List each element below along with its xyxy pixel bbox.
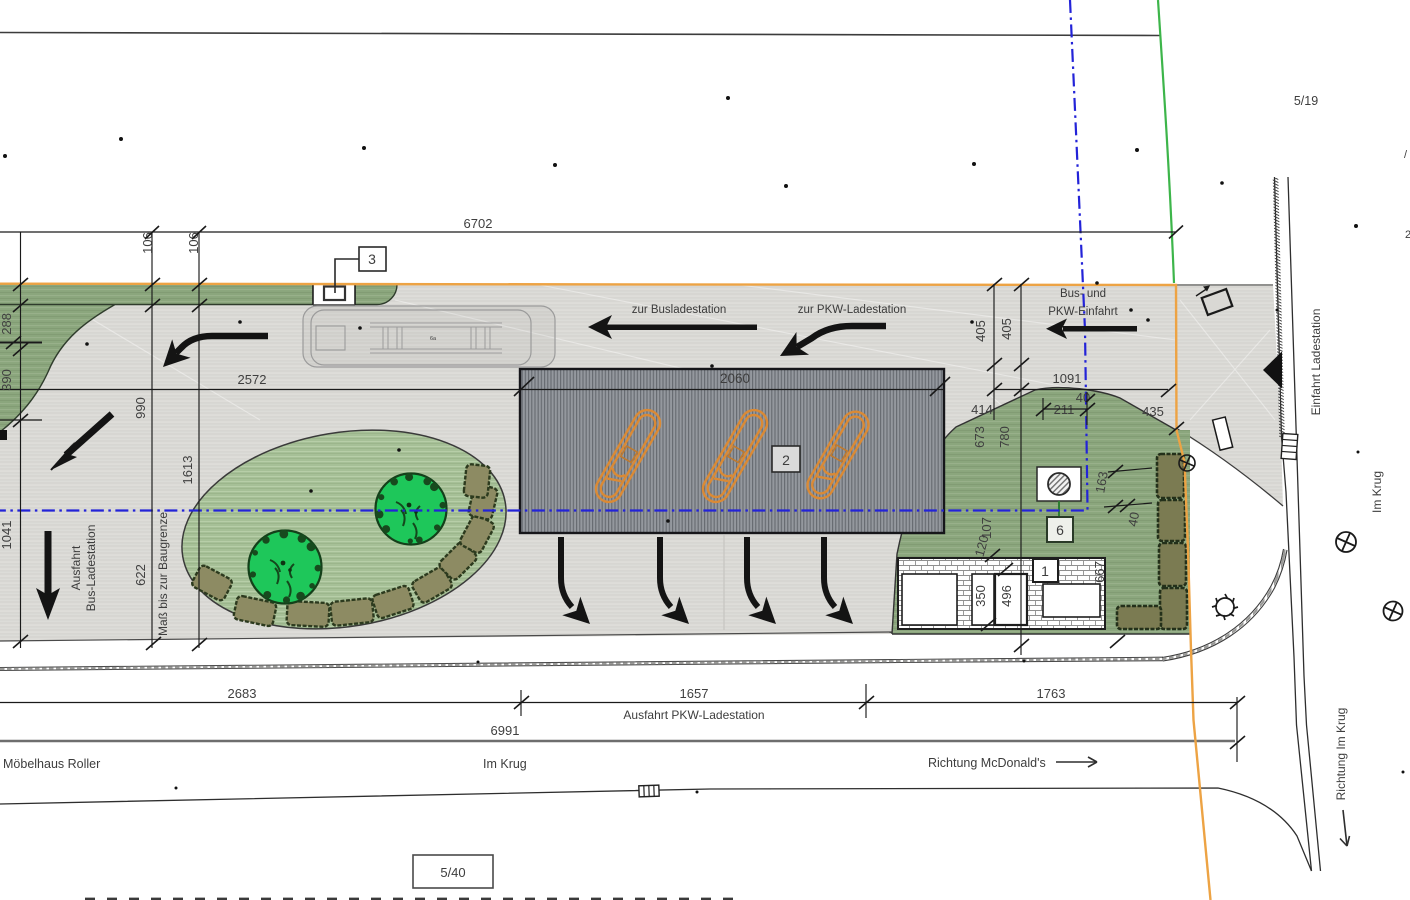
svg-text:1613: 1613 bbox=[180, 456, 195, 485]
svg-text:390: 390 bbox=[0, 369, 14, 391]
svg-text:5/19: 5/19 bbox=[1294, 94, 1318, 108]
svg-text:405: 405 bbox=[999, 318, 1014, 340]
svg-text:Ausfahrt PKW-Ladestation: Ausfahrt PKW-Ladestation bbox=[623, 708, 764, 722]
svg-text:Möbelhaus Roller: Möbelhaus Roller bbox=[3, 757, 100, 771]
svg-text:106: 106 bbox=[140, 232, 155, 254]
svg-text:1: 1 bbox=[1041, 563, 1049, 579]
svg-text:Einfahrt Ladestation: Einfahrt Ladestation bbox=[1309, 309, 1323, 416]
svg-text:6a: 6a bbox=[430, 336, 437, 342]
svg-text:Im Krug: Im Krug bbox=[1370, 471, 1384, 513]
svg-text:1091: 1091 bbox=[1053, 371, 1082, 386]
svg-text:2683: 2683 bbox=[228, 686, 257, 701]
svg-text:288: 288 bbox=[0, 313, 14, 335]
svg-text:6702: 6702 bbox=[464, 216, 493, 231]
svg-text:2060: 2060 bbox=[720, 371, 750, 386]
svg-text:Bus-Ladestation: Bus-Ladestation bbox=[84, 525, 98, 612]
svg-text:5/40: 5/40 bbox=[440, 865, 465, 880]
svg-text:6: 6 bbox=[1056, 522, 1064, 538]
svg-text:Richtung McDonald's: Richtung McDonald's bbox=[928, 756, 1046, 770]
svg-text:2: 2 bbox=[1405, 229, 1410, 241]
svg-text:40: 40 bbox=[1125, 511, 1142, 528]
svg-text:Richtung Im Krug: Richtung Im Krug bbox=[1334, 708, 1348, 801]
svg-text:Maß bis zur Baugrenze: Maß bis zur Baugrenze bbox=[156, 512, 170, 636]
svg-text:1657: 1657 bbox=[680, 686, 709, 701]
svg-text:1041: 1041 bbox=[0, 521, 14, 550]
svg-text:3: 3 bbox=[368, 251, 376, 267]
svg-text:350: 350 bbox=[973, 585, 988, 607]
svg-text:780: 780 bbox=[997, 426, 1012, 448]
svg-text:667: 667 bbox=[1092, 561, 1107, 583]
svg-text:673: 673 bbox=[972, 426, 987, 448]
svg-text:Bus- und: Bus- und bbox=[1060, 288, 1106, 300]
svg-text:zur PKW-Ladestation: zur PKW-Ladestation bbox=[798, 304, 906, 316]
svg-text:496: 496 bbox=[999, 585, 1014, 607]
svg-text:Ausfahrt: Ausfahrt bbox=[69, 545, 83, 590]
svg-text:40: 40 bbox=[1076, 390, 1090, 405]
svg-text:414: 414 bbox=[971, 402, 993, 417]
svg-text:6991: 6991 bbox=[491, 723, 520, 738]
svg-text:zur Busladestation: zur Busladestation bbox=[632, 304, 727, 316]
svg-text:405: 405 bbox=[973, 320, 988, 342]
svg-text:106: 106 bbox=[186, 232, 201, 254]
svg-text:PKW-Einfahrt: PKW-Einfahrt bbox=[1048, 306, 1118, 318]
svg-text:2572: 2572 bbox=[238, 372, 267, 387]
svg-text:2: 2 bbox=[782, 452, 790, 468]
svg-text:990: 990 bbox=[133, 397, 148, 419]
svg-text:622: 622 bbox=[133, 564, 148, 586]
svg-text:Im Krug: Im Krug bbox=[483, 757, 527, 771]
svg-text:435: 435 bbox=[1142, 404, 1164, 419]
svg-text:1763: 1763 bbox=[1037, 686, 1066, 701]
